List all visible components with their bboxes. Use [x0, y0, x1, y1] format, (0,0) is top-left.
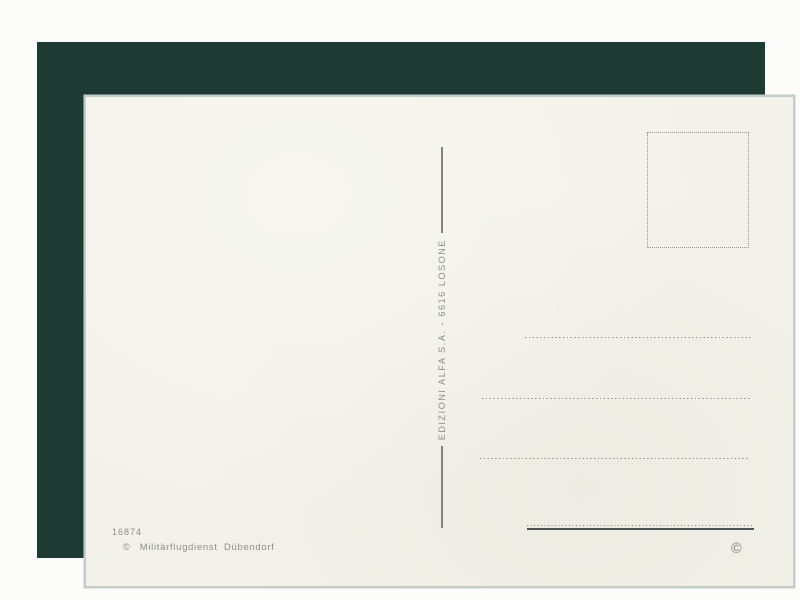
serial-number: 16874 [112, 527, 142, 537]
address-line-3 [480, 458, 750, 459]
stamp-box [647, 132, 749, 248]
publisher-imprint: EDIZIONI ALFA S.A. - 6616 LOSONE [437, 239, 447, 440]
divider-rule-top [441, 147, 443, 233]
divider-rule-bottom [441, 446, 443, 528]
copyright-icon-large: © [731, 541, 742, 557]
address-line-1 [525, 337, 752, 338]
bottom-rule-bar [527, 528, 754, 531]
postcard-back: EDIZIONI ALFA S.A. - 6616 LOSONE 16874 ©… [86, 97, 793, 586]
address-bottom-rule [527, 525, 754, 530]
scan-background: EDIZIONI ALFA S.A. - 6616 LOSONE 16874 ©… [37, 42, 765, 558]
credit-text: Militärflugdienst Dübendorf [140, 542, 275, 553]
address-line-2 [482, 398, 750, 399]
credit-line: © Militärflugdienst Dübendorf [123, 542, 275, 553]
center-divider: EDIZIONI ALFA S.A. - 6616 LOSONE [434, 147, 450, 528]
publisher-imprint-wrap: EDIZIONI ALFA S.A. - 6616 LOSONE [437, 238, 447, 441]
bottom-rule-fringe [527, 525, 754, 526]
copyright-icon: © [123, 542, 131, 553]
